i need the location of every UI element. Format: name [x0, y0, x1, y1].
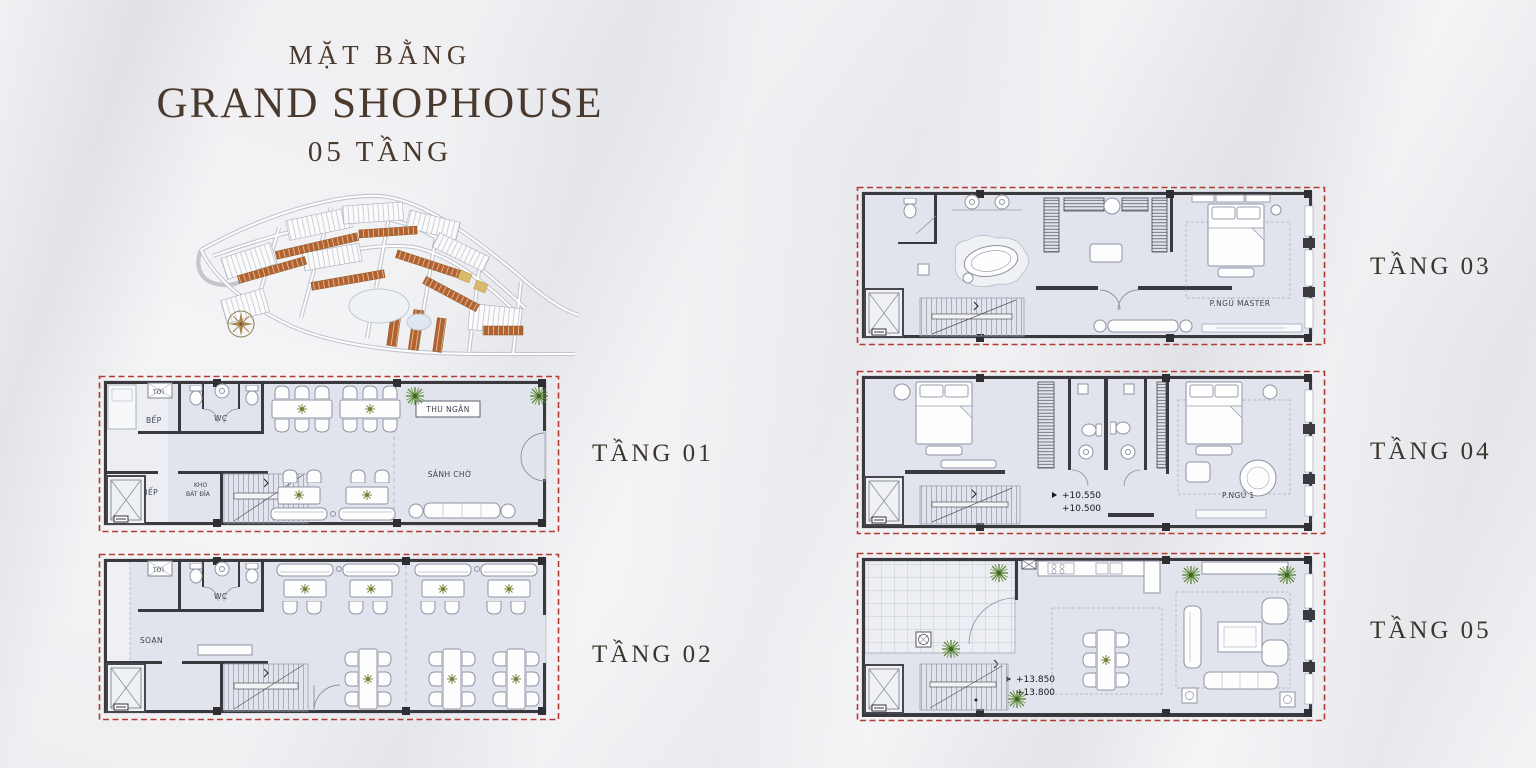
dining-set-6 — [493, 649, 539, 709]
sink — [995, 195, 1009, 209]
title-line-2: GRAND SHOPHOUSE — [140, 79, 620, 128]
plant-icon — [1182, 566, 1200, 584]
level-a: +13.850 — [1016, 675, 1055, 685]
compass-rose-icon — [228, 311, 254, 337]
masterplan-map — [183, 186, 583, 368]
plant-icon — [942, 640, 960, 658]
room-label-thu-ngan: THU NGÂN — [425, 405, 469, 414]
brochure-page: MẶT BẰNG GRAND SHOPHOUSE 05 TẦNG — [0, 0, 1536, 768]
bathtub — [955, 235, 1028, 286]
level-b: +10.500 — [1062, 504, 1101, 514]
wardrobe — [1038, 382, 1054, 468]
plant-icon — [406, 387, 424, 405]
kitchen-counter — [108, 385, 136, 429]
title-line-1: MẶT BẰNG — [140, 40, 620, 71]
room-label-wc: WC — [214, 414, 227, 423]
floor-plan-tang-05: +13.850 +13.800 — [856, 552, 1326, 722]
room-label-master: P.NGỦ MASTER — [1210, 298, 1271, 308]
page-title: MẶT BẰNG GRAND SHOPHOUSE 05 TẦNG — [140, 40, 620, 169]
shelf — [918, 264, 929, 275]
stairs — [920, 664, 1008, 710]
label-tang-01: TẦNG 01 — [592, 440, 712, 468]
room-label-toi: TỜI — [152, 567, 164, 574]
toilet — [190, 563, 202, 583]
room-label-toi: TỜI — [152, 389, 164, 396]
level-b: +13.800 — [1016, 688, 1055, 698]
label-tang-03: TẦNG 03 — [1370, 253, 1490, 281]
terrace — [865, 561, 1015, 653]
room-label-bat-dia: BÁT ĐĨA — [186, 491, 211, 498]
facade-windows — [1303, 390, 1315, 516]
plant-icon — [990, 564, 1008, 582]
dining-set-6 — [429, 649, 475, 709]
dining-set-6 — [340, 386, 400, 432]
floor-plan-tang-04: P.NGỦ 1 +10.550 +10.500 — [856, 370, 1326, 535]
bench — [1094, 320, 1192, 332]
room-label-wc: WC — [214, 592, 227, 601]
room-label-bep: BẾP — [146, 415, 162, 425]
room-label-sanh-cho: SẢNH CHỜ — [428, 470, 472, 479]
stairs — [920, 486, 1020, 524]
level-a: +10.550 — [1062, 491, 1101, 501]
dining-set-6 — [345, 649, 391, 709]
facade-windows — [1303, 574, 1315, 704]
label-tang-04: TẦNG 04 — [1370, 438, 1490, 466]
wardrobe — [1157, 382, 1166, 468]
label-tang-02: TẦNG 02 — [592, 641, 712, 669]
toilet — [246, 385, 258, 405]
sink — [215, 384, 229, 398]
elevator — [865, 665, 903, 713]
floor-plan-tang-01: TỜI BẾP WC KHO BẾP KHO BÁT ĐĨA THU — [98, 375, 560, 533]
label-tang-05: TẦNG 05 — [1370, 617, 1490, 645]
plant-icon — [530, 387, 548, 405]
title-line-3: 05 TẦNG — [140, 136, 620, 169]
stairs — [920, 298, 1024, 336]
room-label-p-ngu-1: P.NGỦ 1 — [1222, 490, 1255, 500]
toilet — [246, 563, 258, 583]
sink — [215, 562, 229, 576]
lobby-sofa — [409, 503, 515, 518]
sink — [965, 195, 979, 209]
floor-plan-tang-03: P.NGỦ MASTER — [856, 186, 1326, 346]
toilet — [190, 385, 202, 405]
toilet — [904, 198, 916, 218]
room-label-soan: SOẠN — [140, 636, 163, 645]
floor-plan-tang-02: TỜI WC SOẠN — [98, 553, 560, 721]
room-label-kho: KHO — [194, 482, 207, 489]
elevator — [107, 664, 145, 712]
serving-counter — [198, 645, 252, 655]
dining-set-6 — [272, 386, 332, 432]
plant-icon — [1278, 566, 1296, 584]
elevator — [865, 289, 903, 337]
elevator — [107, 476, 145, 524]
elevator — [865, 477, 903, 525]
stairs — [224, 664, 308, 711]
facade-windows — [1303, 206, 1315, 328]
